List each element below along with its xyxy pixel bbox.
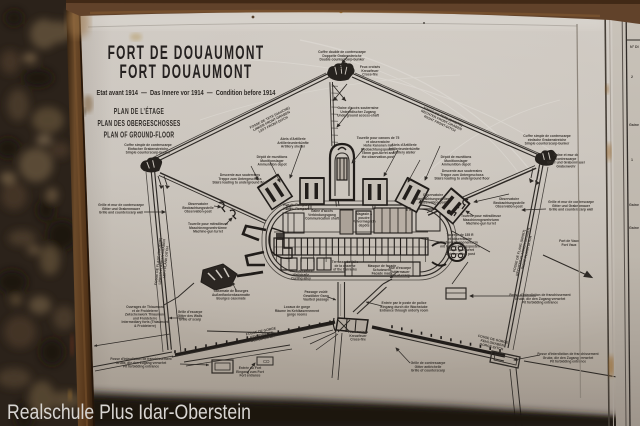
svg-text:Passage voûtéGewölbter GangVau: Passage voûtéGewölbter GangVaulted passa… bbox=[303, 290, 329, 302]
svg-text:Descente aux souterrainsTreppe: Descente aux souterrainsTreppe zum Unter… bbox=[212, 173, 268, 185]
svg-text:1: 1 bbox=[631, 158, 633, 162]
svg-text:Gaine d'accès souterraineUnter: Gaine d'accès souterraineUnterirdischer … bbox=[337, 106, 380, 118]
svg-text:Casemate de BourgesAußenflanke: Casemate de BourgesAußenflankenkasematte… bbox=[212, 289, 250, 301]
svg-text:Gaine: Gaine bbox=[629, 226, 639, 230]
svg-text:Entrée par le poste de policeE: Entrée par le poste de policeEingang dur… bbox=[380, 301, 429, 313]
svg-text:Gaine e: Gaine e bbox=[629, 123, 640, 127]
svg-text:Descente aux souterrainsTreppe: Descente aux souterrainsTreppe zum Unter… bbox=[434, 169, 490, 181]
svg-text:PLAN OF GROUND-FLOOR: PLAN OF GROUND-FLOOR bbox=[104, 131, 175, 139]
svg-text:Tourelle pour mitrailleuseMasc: Tourelle pour mitrailleuseMaschinengeweh… bbox=[188, 222, 228, 234]
svg-text:Entrée du FortEingang zum Fort: Entrée du FortEingang zum FortFort entra… bbox=[236, 366, 265, 378]
svg-text:Fort de VauxFort Vaux: Fort de VauxFort Vaux bbox=[559, 239, 579, 247]
svg-text:PLAN DES OBERGESCHOSSES: PLAN DES OBERGESCHOSSES bbox=[97, 120, 180, 128]
svg-text:2: 2 bbox=[631, 75, 633, 79]
svg-text:Tourelle pour mitrailleuseMasc: Tourelle pour mitrailleuseMaschinengeweh… bbox=[461, 214, 501, 226]
svg-text:Grille d'escarpeGitter des Wal: Grille d'escarpeGitter des WallsGrille o… bbox=[178, 310, 203, 322]
svg-text:Dépôt de munitionsMunitionslag: Dépôt de munitionsMunitionslagerAmmuniti… bbox=[441, 155, 472, 167]
svg-text:Coffre simple de contrescarpeE: Coffre simple de contrescarpeEinfacher G… bbox=[124, 143, 172, 155]
svg-text:Terrasse de l'ailede la casern: Terrasse de l'ailede la caserneof the ba… bbox=[332, 260, 359, 272]
svg-text:CD: CD bbox=[263, 359, 270, 364]
svg-text:Grille de contrescarpeGitter a: Grille de contrescarpeGitter antiéchelle… bbox=[411, 361, 446, 373]
svg-text:Dépôt de munitionsMunitionslag: Dépôt de munitionsMunitionslagerAmmuniti… bbox=[257, 155, 288, 167]
svg-text:FORT DOUAUMONT: FORT DOUAUMONT bbox=[119, 61, 252, 83]
svg-text:Grille et mur de contrescarpeG: Grille et mur de contrescarpeGitter und … bbox=[548, 200, 594, 212]
svg-text:Abris d'ArtillerieArtillerieun: Abris d'ArtillerieArtillerieunterkünfteA… bbox=[277, 137, 309, 149]
svg-text:Feux croisésKreuzfeuerCross-fi: Feux croisésKreuzfeuerCross-fire bbox=[360, 65, 380, 77]
svg-text:Etat avant 1914 — Das Innere: Etat avant 1914 — Das Innere vor 1914 — … bbox=[97, 89, 276, 97]
svg-text:PLAN DE L’ÉTAGE: PLAN DE L’ÉTAGE bbox=[114, 106, 165, 117]
svg-text:Coffre simple de contrescarpee: Coffre simple de contrescarpeeinfache Gr… bbox=[523, 134, 571, 146]
svg-text:Abris d'ArtillerieArtillerieun: Abris d'ArtillerieArtillerieunterkünfteA… bbox=[388, 143, 420, 155]
svg-text:Coffre double de contrescarpeD: Coffre double de contrescarpeDoppelte Gr… bbox=[318, 50, 366, 62]
svg-text:Gaine: Gaine bbox=[629, 203, 639, 207]
svg-text:Rue du RempartRue du Rempart: Rue du RempartRue du Rempart bbox=[283, 203, 309, 211]
svg-text:Realschule Plus Idar-Oberstein: Realschule Plus Idar-Oberstein bbox=[7, 400, 251, 424]
svg-text:N° DI: N° DI bbox=[630, 45, 639, 49]
svg-text:Grille et mur de contrescarpeG: Grille et mur de contrescarpeGitter und … bbox=[98, 203, 144, 215]
svg-text:Feux croisésKreuzfeuerCross-fi: Feux croisésKreuzfeuerCross-fire bbox=[348, 330, 368, 342]
